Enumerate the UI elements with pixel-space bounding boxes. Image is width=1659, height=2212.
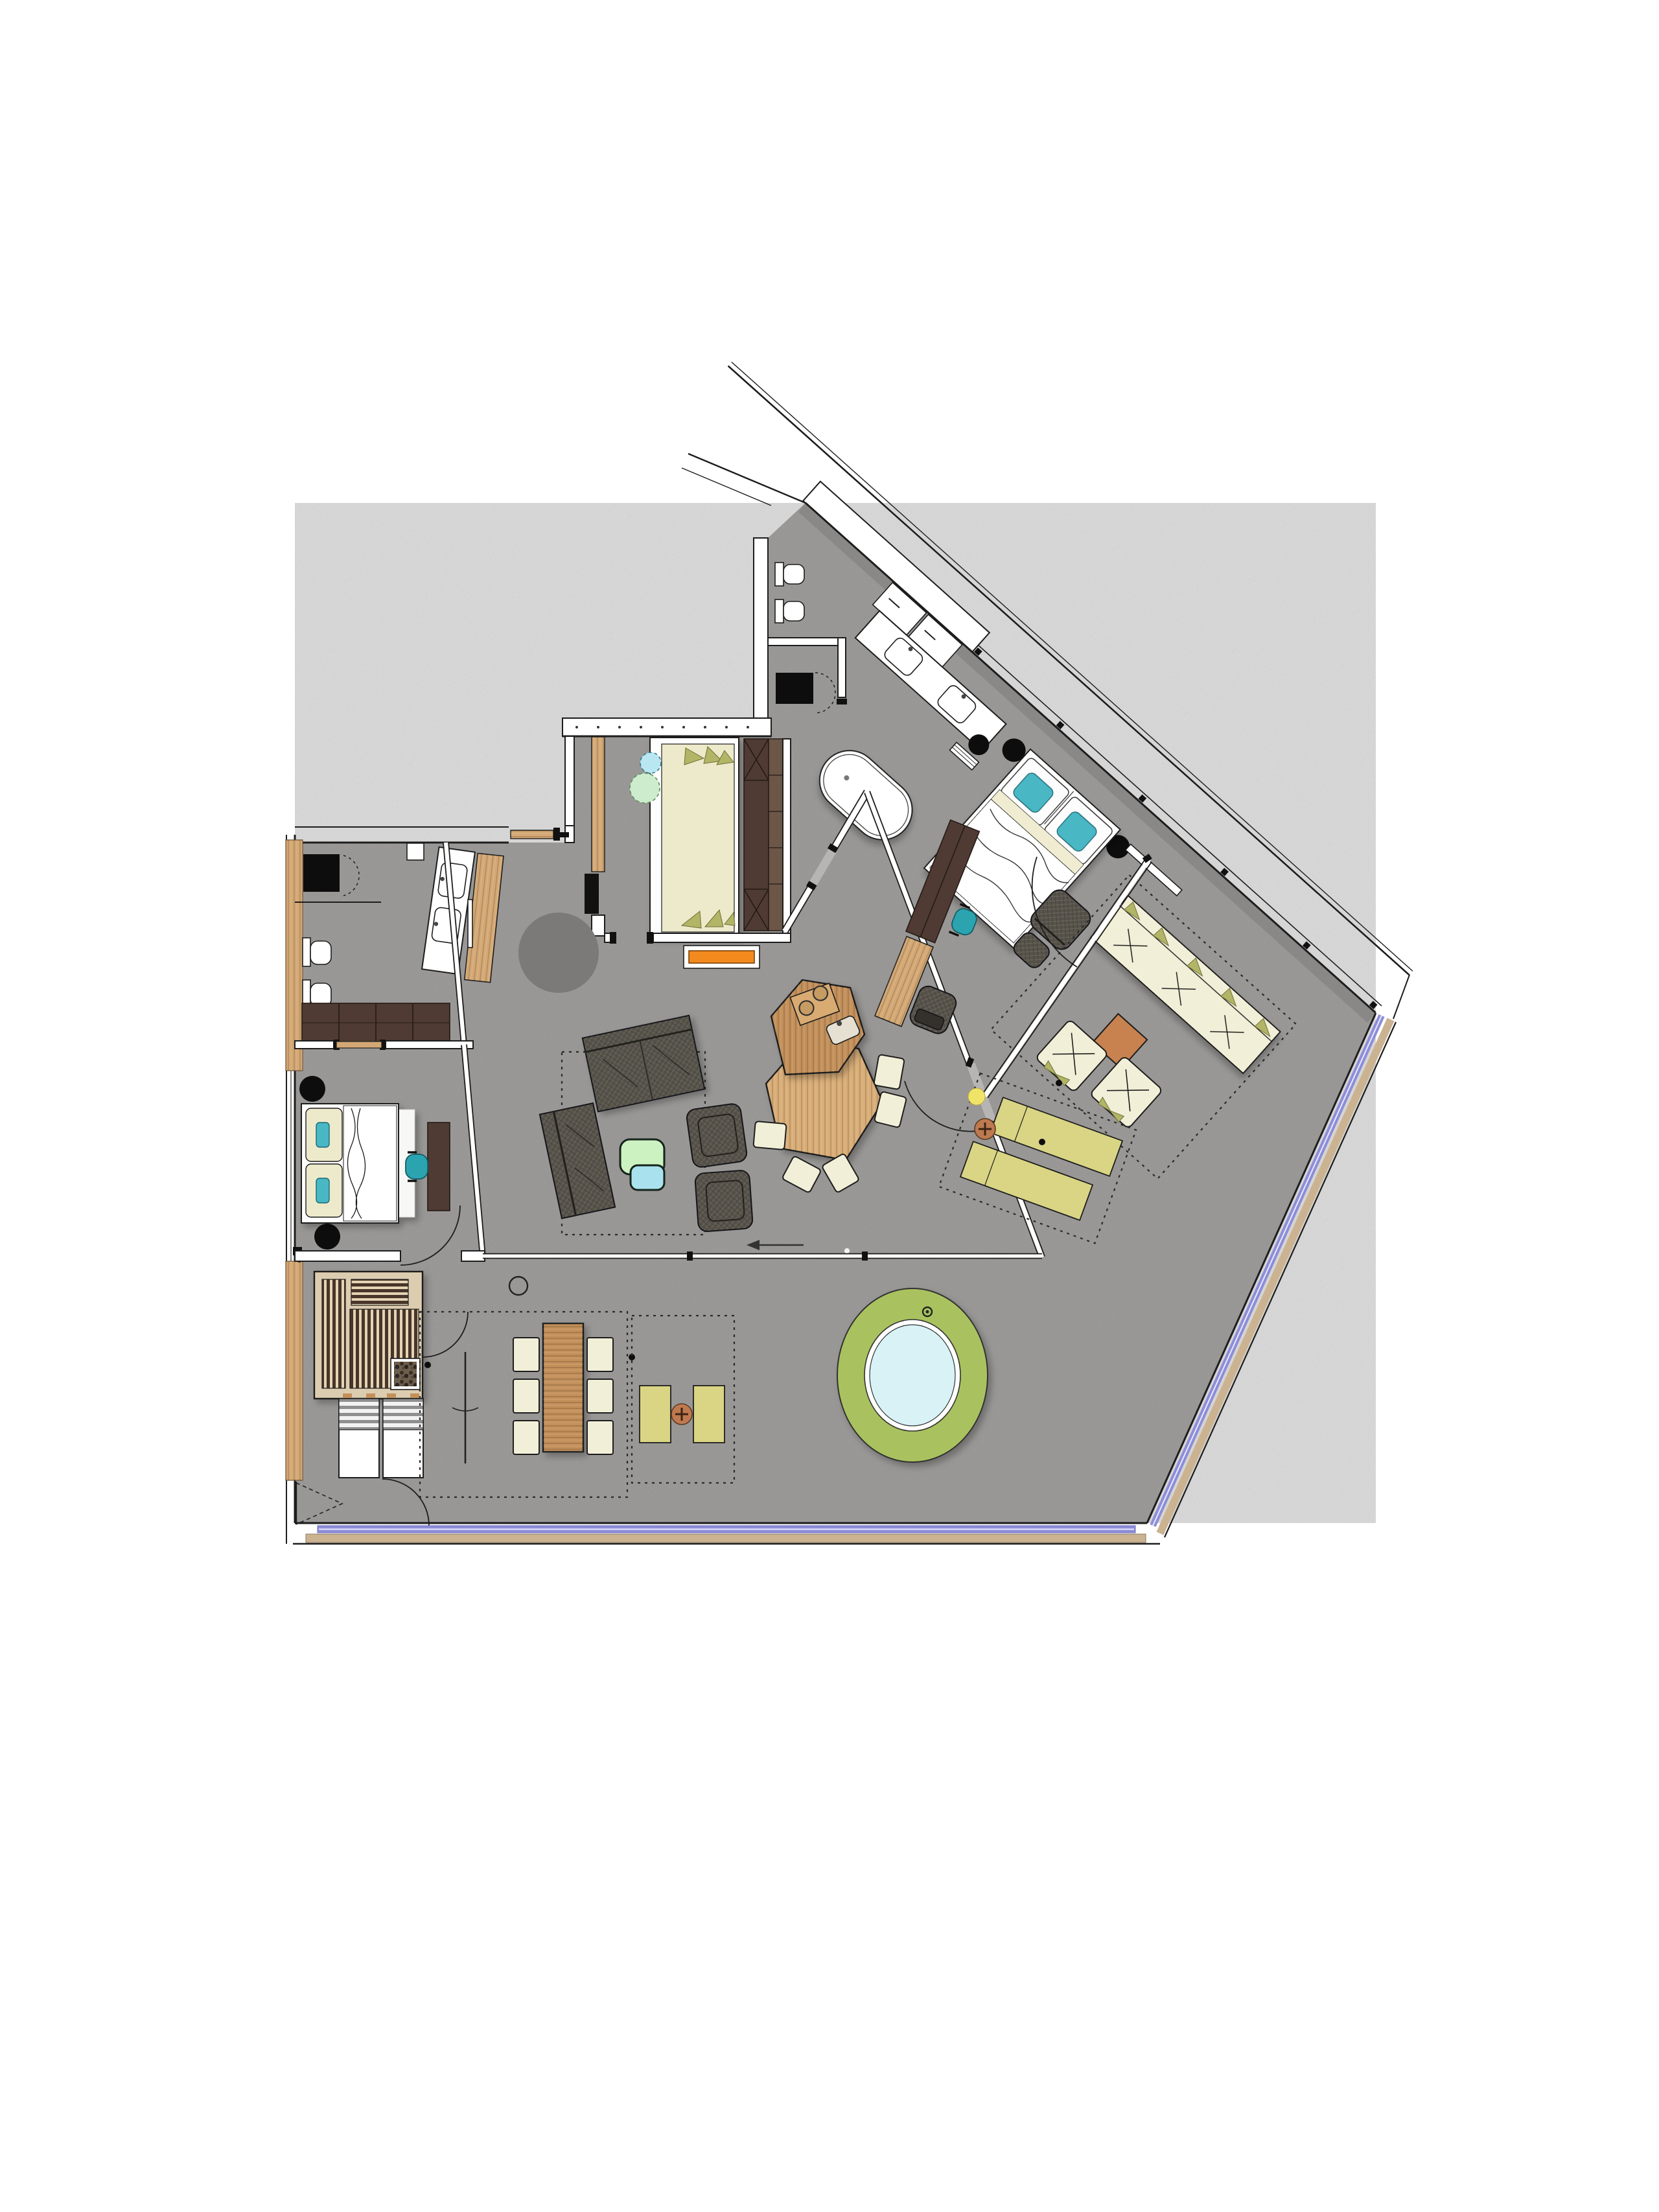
tv-panel bbox=[585, 874, 599, 914]
toilet bbox=[303, 938, 331, 966]
entry-door bbox=[511, 828, 569, 841]
door-leaf bbox=[336, 1042, 382, 1048]
toilet bbox=[775, 563, 804, 586]
black-shower-mat bbox=[303, 854, 340, 892]
wc-west-wall bbox=[754, 538, 768, 736]
mirror bbox=[468, 900, 472, 948]
bidet bbox=[775, 600, 804, 623]
blue-pouf bbox=[640, 752, 661, 773]
master-west-wall bbox=[565, 736, 574, 831]
floor-plan-page bbox=[0, 0, 1659, 2212]
room-master-bedroom bbox=[563, 718, 791, 968]
wall-niche bbox=[407, 843, 424, 860]
bed-1 bbox=[301, 1104, 415, 1223]
round-hot-tub bbox=[837, 1288, 988, 1462]
bedroom1-north-wall bbox=[295, 1040, 473, 1050]
black-floor-mat bbox=[776, 673, 813, 704]
green-pouf bbox=[630, 773, 660, 803]
wardrobe-side-wall bbox=[783, 739, 791, 933]
bed-master bbox=[650, 738, 739, 937]
armchair-1 bbox=[686, 1103, 748, 1169]
sauna-bench-left bbox=[322, 1279, 345, 1388]
facade-railing-join bbox=[1393, 975, 1410, 1019]
yellow-lamp-dot bbox=[968, 1088, 985, 1105]
nightstand-top bbox=[299, 1076, 325, 1102]
nightstand-bottom bbox=[314, 1224, 340, 1250]
wardrobe-master bbox=[744, 739, 783, 931]
floor-dot bbox=[844, 1248, 850, 1254]
closet-row bbox=[302, 1003, 450, 1042]
round-gray-rug bbox=[518, 913, 599, 993]
teal-desk-chair-1 bbox=[406, 1152, 428, 1181]
party-wall-stub bbox=[682, 454, 806, 506]
outdoor-dining-table bbox=[543, 1323, 583, 1452]
armchair-2 bbox=[695, 1170, 753, 1232]
sauna-stove bbox=[394, 1362, 417, 1386]
orange-bench bbox=[684, 946, 760, 968]
floor-plan-drawing bbox=[0, 0, 1659, 2212]
blue-side-table bbox=[631, 1165, 664, 1190]
desk-1 bbox=[428, 1123, 450, 1211]
master-window-band bbox=[563, 718, 771, 736]
room-sauna bbox=[314, 1272, 423, 1399]
sauna-bench-top bbox=[351, 1279, 408, 1305]
